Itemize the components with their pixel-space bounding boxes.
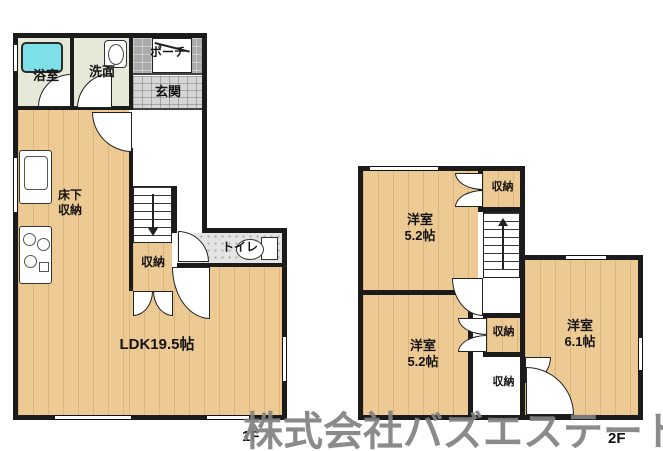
arrow-down-icon bbox=[148, 194, 158, 238]
label-closet-2f-top: 収納 bbox=[486, 181, 519, 195]
window-kitchen bbox=[13, 158, 18, 212]
label-room-2f-nw: 洋室 5.2帖 bbox=[391, 212, 449, 245]
stove-burner-2 bbox=[37, 238, 50, 251]
label-toilet: トイレ bbox=[216, 240, 264, 255]
floorplan-canvas: 浴室 洗面 ポーチ 玄関 床下 収納 収納 トイレ LDK19.5帖 1F bbox=[0, 0, 663, 451]
arrow-head bbox=[148, 228, 158, 236]
label-stair-storage: 収納 bbox=[134, 255, 172, 270]
wall-washroom-entrance bbox=[129, 33, 133, 110]
wall-stairs-right bbox=[172, 186, 177, 233]
window-bath bbox=[13, 45, 18, 71]
label-closet-2f-mid: 収納 bbox=[487, 326, 520, 340]
window-ldk-right bbox=[282, 337, 287, 381]
window-2f-e-right bbox=[638, 338, 643, 370]
wall-2f-mid-closet-top bbox=[483, 313, 520, 318]
window-2f-top bbox=[370, 166, 438, 171]
window-2f-e-top bbox=[566, 255, 606, 260]
arrow-line bbox=[152, 194, 154, 230]
wall-1f-right-lower bbox=[282, 228, 287, 420]
label-room-2f-sw: 洋室 5.2帖 bbox=[394, 338, 452, 371]
wall-hall-ldk bbox=[129, 148, 133, 291]
entrance-step-line bbox=[133, 108, 202, 110]
label-washroom: 洗面 bbox=[80, 64, 124, 80]
arrow-line bbox=[502, 225, 504, 269]
label-room-2f-e: 洋室 6.1帖 bbox=[551, 318, 609, 351]
arrow-up-icon bbox=[498, 218, 508, 270]
label-porch: ポーチ bbox=[138, 45, 198, 60]
label-ldk: LDK19.5帖 bbox=[102, 336, 212, 355]
label-entrance: 玄関 bbox=[146, 84, 190, 100]
wall-toilet-top bbox=[202, 228, 287, 233]
porch-step-line bbox=[133, 73, 202, 75]
window-ldk-bottom-left bbox=[55, 415, 131, 420]
wall-2f-closet-stairs bbox=[483, 207, 520, 212]
watermark: 株式会社バズエステート bbox=[243, 399, 663, 451]
kitchen-sink-basin bbox=[24, 156, 48, 190]
stove-burner-3 bbox=[24, 255, 37, 268]
stove-panel bbox=[39, 262, 49, 272]
stove-burner-1 bbox=[23, 233, 36, 246]
washroom-basin bbox=[108, 44, 124, 65]
label-bath: 浴室 bbox=[24, 68, 68, 84]
label-underfloor-storage: 床下 収納 bbox=[48, 188, 92, 218]
label-closet-2f-bottom: 収納 bbox=[487, 376, 520, 390]
wall-bathrow-bottom bbox=[13, 106, 133, 110]
wall-1f-left bbox=[13, 33, 18, 420]
wall-2f-mid-closet-bottom bbox=[483, 352, 520, 357]
wall-1f-right-upper bbox=[202, 33, 207, 233]
